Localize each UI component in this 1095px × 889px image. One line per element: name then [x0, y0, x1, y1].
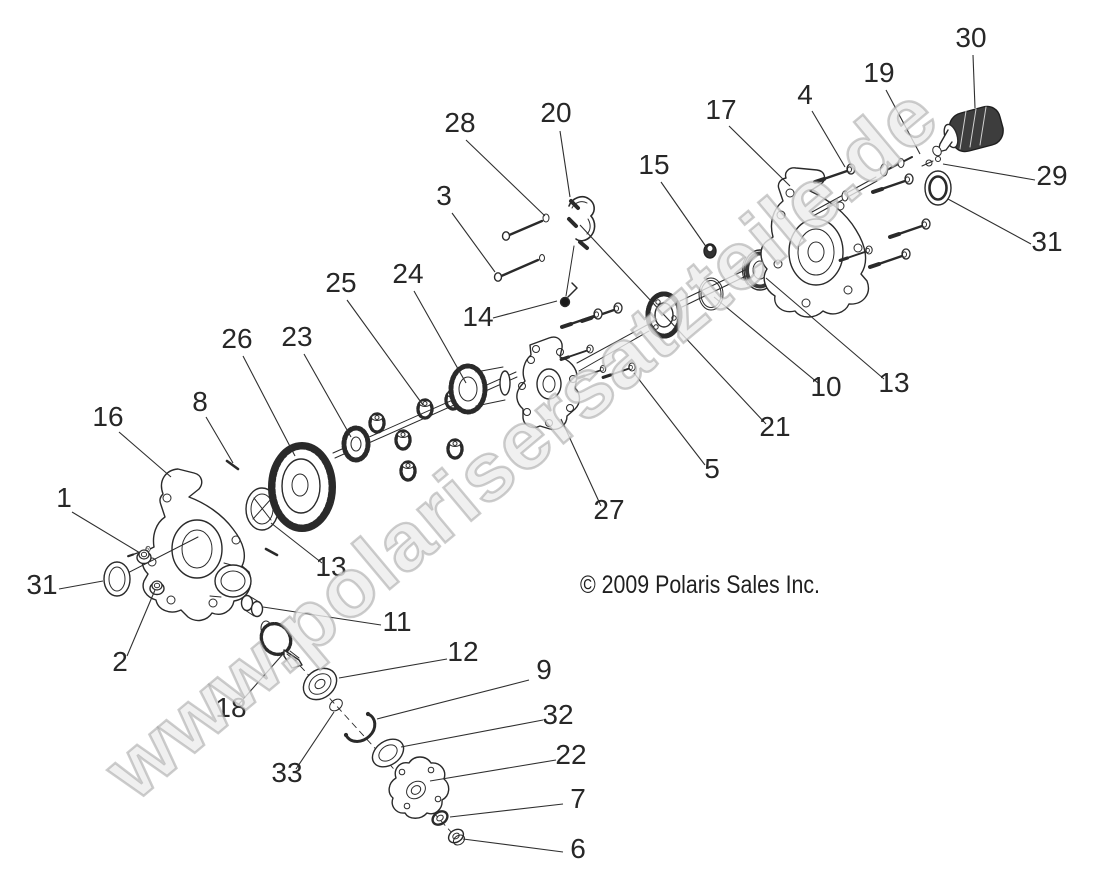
- leader-line-3: [452, 213, 495, 272]
- part-number-4: 4: [797, 79, 813, 110]
- snap-ring-9: [346, 714, 375, 741]
- part-number-13: 13: [878, 367, 909, 398]
- part-number-12: 12: [447, 636, 478, 667]
- part-number-10: 10: [810, 371, 841, 402]
- part-number-32: 32: [542, 699, 573, 730]
- part-number-24: 24: [392, 258, 423, 289]
- part-number-29: 29: [1036, 160, 1067, 191]
- part-number-26: 26: [221, 323, 252, 354]
- part-number-28: 28: [444, 107, 475, 138]
- shift-fork-20: [566, 197, 595, 296]
- part-number-31: 31: [1031, 226, 1062, 257]
- part-number-9: 9: [536, 654, 552, 685]
- copyright-text: © 2009 Polaris Sales Inc.: [580, 571, 820, 599]
- part-number-22: 22: [555, 739, 586, 770]
- leader-line-29: [943, 164, 1035, 180]
- leader-line-20: [560, 131, 570, 197]
- part-number-27: 27: [593, 494, 624, 525]
- ring-gear-26: [269, 443, 336, 532]
- leader-line-25: [347, 300, 423, 405]
- leader-line-12: [339, 659, 447, 678]
- gear-23: [344, 428, 368, 460]
- leader-line-23: [304, 354, 351, 437]
- leader-line-8: [206, 417, 233, 463]
- leader-line-2: [127, 590, 155, 656]
- part-number-17: 17: [705, 94, 736, 125]
- seal-31-rear: [925, 171, 951, 205]
- bolt: [890, 219, 930, 237]
- exploded-diagram: 1234567891011121313141516171819202122232…: [0, 0, 1095, 889]
- part-number-14: 14: [462, 301, 493, 332]
- part-number-16: 16: [92, 401, 123, 432]
- leader-line-7: [450, 804, 563, 817]
- leader-line-32: [401, 720, 543, 747]
- part-number-1: 1: [56, 482, 72, 513]
- part-number-25: 25: [325, 267, 356, 298]
- pinion-gear: [396, 431, 410, 449]
- front-gearcase-housing: [142, 469, 251, 620]
- part-number-3: 3: [436, 180, 452, 211]
- part-number-33: 33: [271, 757, 302, 788]
- screw-3b: [499, 260, 538, 277]
- leader-line-6: [463, 839, 563, 852]
- leader-line-14: [493, 301, 557, 318]
- leader-line-24: [414, 291, 466, 383]
- pinion-gear: [418, 400, 432, 418]
- parts-diagram-page: 1234567891011121313141516171819202122232…: [0, 0, 1095, 889]
- leader-line-16: [119, 432, 171, 477]
- watermark-text: www.polarisersatzteile.de: [87, 69, 954, 818]
- part-number-5: 5: [704, 453, 720, 484]
- output-flange-22: [389, 757, 449, 818]
- bolt: [870, 249, 910, 267]
- part-number-31: 31: [26, 569, 57, 600]
- leader-line-1: [72, 512, 140, 553]
- part-number-30: 30: [955, 22, 986, 53]
- part-number-8: 8: [192, 386, 208, 417]
- pinion-gear: [370, 414, 384, 432]
- detent-pin-14: [561, 298, 570, 307]
- leader-line-26: [243, 356, 295, 456]
- part-number-20: 20: [540, 97, 571, 128]
- part-number-7: 7: [570, 783, 586, 814]
- part-number-23: 23: [281, 321, 312, 352]
- roll-pin: [266, 549, 277, 555]
- leader-line-22: [430, 760, 556, 781]
- part-number-21: 21: [759, 411, 790, 442]
- part-number-6: 6: [570, 833, 586, 864]
- part-number-2: 2: [112, 646, 128, 677]
- part-number-15: 15: [638, 149, 669, 180]
- leader-line-28: [466, 140, 545, 216]
- leader-line-9: [377, 680, 529, 719]
- leader-line-30: [973, 55, 975, 108]
- screw-3: [507, 221, 542, 236]
- leader-line-31: [59, 581, 103, 589]
- nut-2: [150, 581, 164, 595]
- leader-line-31: [948, 199, 1031, 244]
